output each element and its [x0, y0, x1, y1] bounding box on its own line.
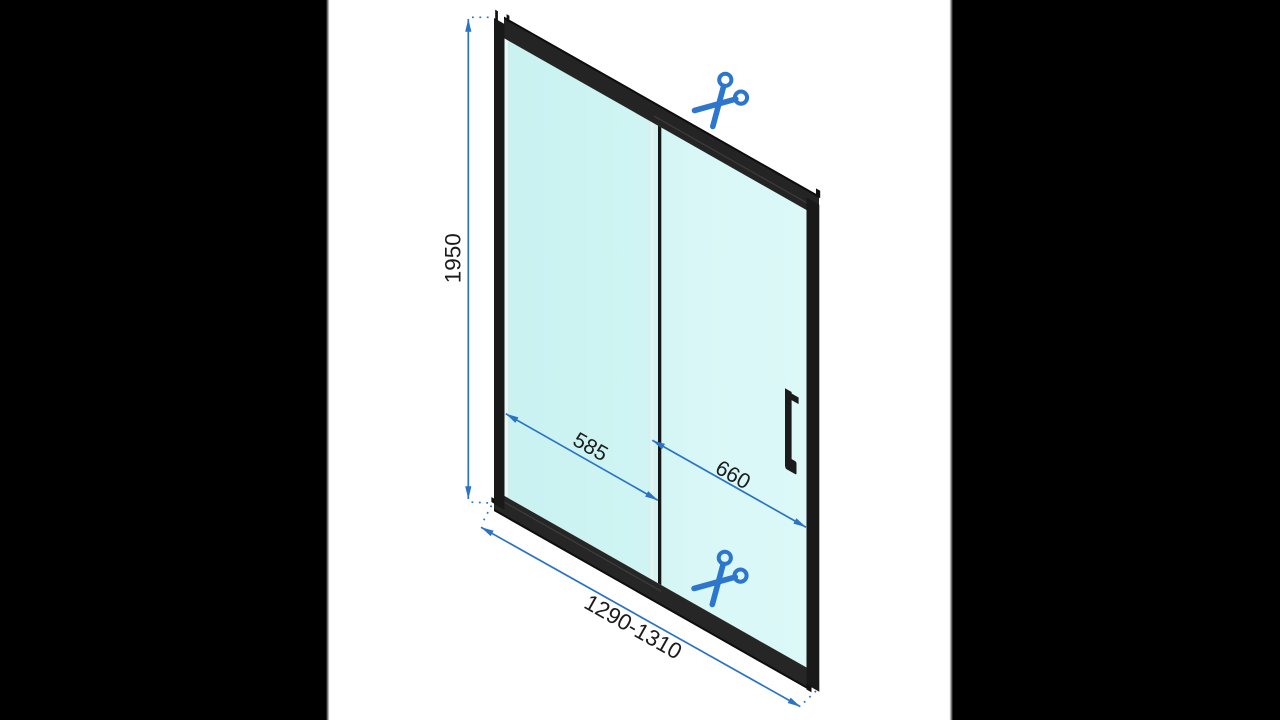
svg-text:1950: 1950: [440, 233, 465, 283]
